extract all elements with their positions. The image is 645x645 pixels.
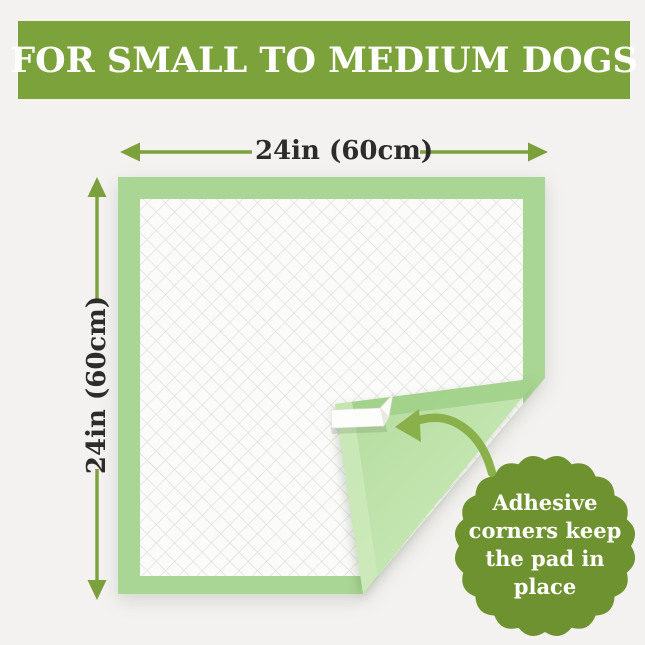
arrowhead-down-icon [88,580,107,600]
badge-line-3: the pad in [453,545,637,573]
badge-line-2: corners keep [453,517,637,545]
badge-line-1: Adhesive [453,489,637,517]
arrowhead-left-icon [120,143,140,162]
height-dimension-label: 24in (60cm) [82,285,112,485]
product-infographic: FOR SMALL TO MEDIUM DOGS [0,0,645,645]
width-dimension-label: 24in (60cm) [255,136,415,166]
badge-text: Adhesive corners keep the pad in place [453,489,637,601]
arrowhead-up-icon [88,177,107,197]
badge-line-4: place [453,573,637,601]
arrowhead-right-icon [528,143,548,162]
